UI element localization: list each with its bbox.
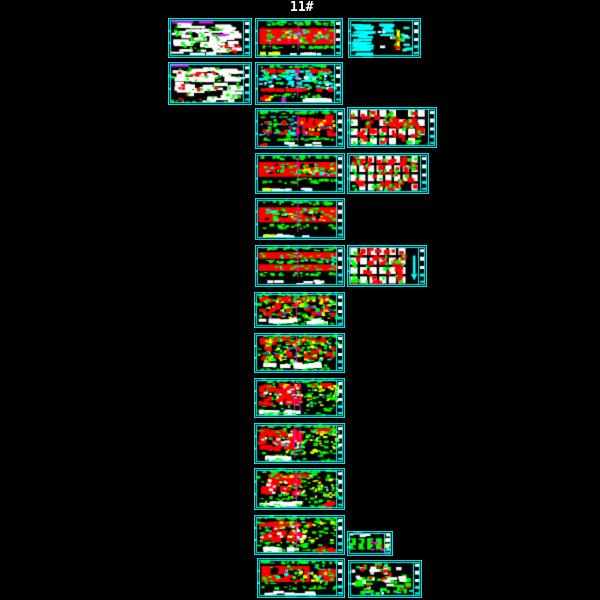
sheet-row8-center-content — [254, 333, 345, 373]
sheet-row1-right-content — [348, 18, 421, 58]
sheet-row10-center-content — [254, 423, 345, 464]
sheet-row4-center-content — [255, 153, 345, 194]
sheet-row1-right — [348, 18, 421, 58]
sheet-row6-center-content — [255, 245, 345, 287]
sheet-row13-center-content — [257, 558, 345, 598]
sheet-row12-center-content — [254, 515, 345, 555]
sheet-row9-center — [254, 378, 345, 418]
sheet-row2-left — [168, 62, 252, 105]
sheet-row2-center — [255, 62, 343, 105]
sheet-row5-center-content — [255, 198, 345, 240]
sheet-row13-center — [257, 558, 345, 598]
sheet-row2-center-content — [255, 62, 343, 105]
sheet-row2-left-content — [168, 62, 252, 105]
sheet-row6-right — [347, 245, 427, 287]
sheet-row13-right-content — [348, 560, 422, 598]
sheet-row13-right — [348, 560, 422, 598]
sheet-row1-left — [168, 18, 252, 58]
sheet-row3-center-content — [255, 108, 345, 149]
sheet-row7-center-content — [254, 292, 345, 328]
sheet-row8-center — [254, 333, 345, 373]
sheet-row3-right — [347, 107, 437, 148]
sheet-row11-center-content — [254, 468, 345, 510]
sheet-row12-right — [347, 531, 393, 556]
sheet-row12-center — [254, 515, 345, 555]
sheet-row11-center — [254, 468, 345, 510]
sheet-row3-right-content — [347, 107, 437, 148]
sheet-row4-center — [255, 153, 345, 194]
sheet-row4-right-content — [347, 153, 429, 194]
sheet-row7-center — [254, 292, 345, 328]
sheet-row6-center — [255, 245, 345, 287]
sheet-row1-left-content — [168, 18, 252, 58]
cad-drawing-preview: 11# — [0, 0, 600, 600]
sheet-row4-right — [347, 153, 429, 194]
sheet-row1-center — [255, 18, 343, 58]
sheet-row9-center-content — [254, 378, 345, 418]
sheet-row12-right-content — [347, 531, 393, 556]
sheet-row6-right-content — [347, 245, 427, 287]
sheet-row10-center — [254, 423, 345, 464]
drawing-title: 11# — [290, 0, 313, 15]
sheet-row5-center — [255, 198, 345, 240]
sheet-row1-center-content — [255, 18, 343, 58]
sheet-row3-center — [255, 108, 345, 149]
